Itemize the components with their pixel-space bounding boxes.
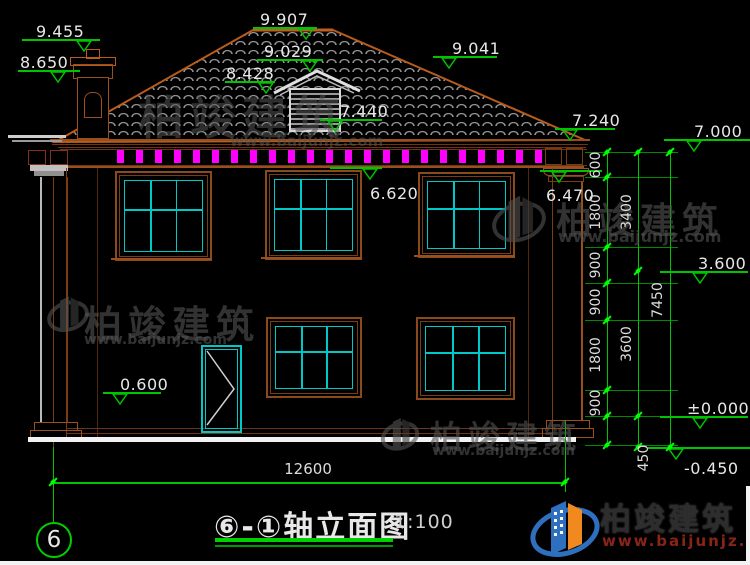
dim-value: 900 (588, 288, 604, 315)
eave-dentil (421, 150, 428, 163)
page-border-right (746, 486, 750, 565)
title-underline-thick (215, 538, 393, 542)
dim-value: 900 (588, 390, 604, 417)
eave-dentil (383, 150, 390, 163)
elevation-mark-triangle (551, 171, 567, 183)
window (115, 171, 212, 261)
window-sill (111, 258, 212, 260)
elevation-mark-label: 7.000 (694, 122, 742, 141)
page-border-bottom (0, 561, 750, 565)
elevation-mark-triangle (441, 57, 457, 69)
elevation-mark-triangle (668, 448, 684, 460)
eave-dentil (478, 150, 485, 163)
eave-dentil (459, 150, 466, 163)
elevation-mark-label: 8.650 (20, 53, 68, 72)
watermark-brand-url: www.baijunjz.com (432, 443, 575, 459)
elevation-mark-label: 9.907 (260, 10, 308, 29)
overall-width-dimension: 12600 (284, 460, 332, 478)
window (416, 317, 515, 400)
watermark-brand-url: www.baijunjz.com (558, 227, 721, 246)
eave-dentil (402, 150, 409, 163)
elevation-mark-triangle (298, 28, 314, 40)
elevation-mark-triangle (50, 71, 66, 83)
eave-dentil (212, 150, 219, 163)
eave-dentil (117, 150, 124, 163)
elevation-mark-triangle (562, 129, 578, 141)
entry-door (201, 345, 242, 433)
dim-value: 3400 (619, 194, 635, 230)
elevation-mark-label: 0.600 (120, 375, 168, 394)
eave-dentil (174, 150, 181, 163)
brand-url: www.baijunjz.com (602, 532, 750, 550)
eave-dentil (250, 150, 257, 163)
eave-dentil (136, 150, 143, 163)
elevation-mark-label: 9.029 (264, 42, 312, 61)
elevation-mark-label: 8.428 (226, 64, 274, 83)
elevation-mark-triangle (692, 272, 708, 284)
elevation-mark-label: 3.600 (698, 254, 746, 273)
dim-extension-line (585, 320, 678, 321)
elevation-mark-label: -0.450 (684, 459, 739, 478)
eave-dentil (307, 150, 314, 163)
eave-dentil (345, 150, 352, 163)
window-sill (414, 255, 515, 257)
elevation-mark-triangle (686, 140, 702, 152)
dim-value: 900 (588, 252, 604, 279)
eave-dentil (535, 150, 542, 163)
eave-dentil (497, 150, 504, 163)
bottom-dim-line (53, 482, 565, 484)
eave-dentil (516, 150, 523, 163)
elevation-mark-triangle (327, 120, 343, 132)
eave-dentil (231, 150, 238, 163)
eave-dentil (326, 150, 333, 163)
dim-value: 1800 (588, 337, 604, 373)
eave-dentil (288, 150, 295, 163)
elevation-mark-triangle (258, 82, 274, 94)
watermark-brand-url: www.baijunjz.com (230, 132, 383, 150)
drawing-scale: 1:100 (394, 511, 454, 533)
elevation-mark-triangle (76, 40, 92, 52)
dim-value: 600 (588, 151, 604, 178)
dim-extension-line (585, 445, 678, 446)
axis-bubble-6: 6 (36, 522, 72, 558)
dim-extension-line (585, 247, 678, 248)
eave-dentil (269, 150, 276, 163)
elevation-mark-label: 7.240 (572, 111, 620, 130)
eave-dentil (155, 150, 162, 163)
eave-dentil (193, 150, 200, 163)
title-underline-thin (215, 545, 393, 547)
dim-value: 1800 (588, 194, 604, 230)
window (265, 170, 362, 260)
eave-dentil (364, 150, 371, 163)
elevation-mark-label: 9.455 (36, 22, 84, 41)
eave-dentil (440, 150, 447, 163)
elevation-mark-label: ±0.000 (687, 399, 749, 418)
dim-value: 7450 (650, 282, 666, 318)
watermark-brand-url: www.baijunjz.com (84, 332, 227, 348)
dim-value: 450 (636, 445, 652, 472)
elevation-mark-label: 9.041 (452, 39, 500, 58)
elevation-mark-triangle (692, 417, 708, 429)
elevation-mark-triangle (362, 168, 378, 180)
brand-logo-icon (527, 492, 605, 564)
window-sill (261, 257, 362, 259)
elevation-mark-label: 6.620 (370, 184, 418, 203)
dim-value: 3600 (619, 326, 635, 362)
window (266, 317, 362, 398)
elevation-mark-triangle (302, 60, 318, 72)
elevation-mark-triangle (112, 393, 128, 405)
elevation-mark-label: 7.440 (340, 102, 388, 121)
elevation-mark-line (648, 447, 750, 449)
cad-elevation-drawing: 9.4558.6509.9079.0298.4287.4409.0417.240… (0, 0, 750, 565)
